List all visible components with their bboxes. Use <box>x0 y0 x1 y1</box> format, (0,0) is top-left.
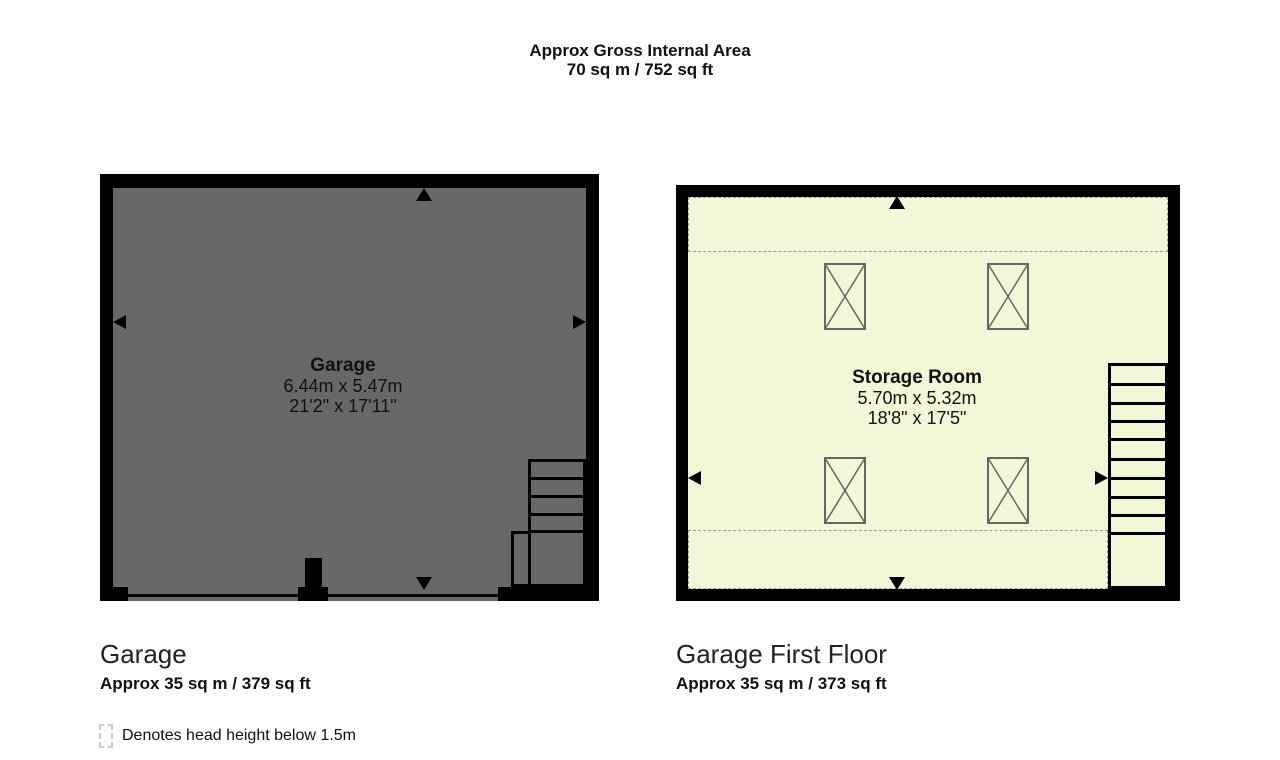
roof-truss-icon <box>824 457 866 524</box>
caption-title: Garage First Floor <box>676 640 887 668</box>
wall-bottom-left-corner <box>100 587 128 601</box>
room-label-garage: Garage 6.44m x 5.47m 21'2" x 17'11" <box>113 356 573 416</box>
wall-top <box>100 174 599 188</box>
stair-tread <box>1111 514 1165 517</box>
wall-top <box>676 185 1180 197</box>
arrow-right-icon <box>1095 471 1108 485</box>
arrow-left-icon <box>113 315 126 329</box>
stair-tread <box>1111 532 1165 535</box>
stair-tread <box>531 530 583 533</box>
wall-bottom <box>676 589 1180 601</box>
caption-garage: Garage Approx 35 sq m / 379 sq ft <box>100 640 311 694</box>
roof-truss-icon <box>987 263 1029 330</box>
garage-door-left <box>128 594 298 597</box>
wall-bottom-right-section <box>498 587 599 601</box>
caption-title: Garage <box>100 640 311 668</box>
stair-tread <box>531 495 583 498</box>
room-name: Storage Room <box>688 368 1146 388</box>
caption-garage-first-floor: Garage First Floor Approx 35 sq m / 373 … <box>676 640 887 694</box>
floorplan-page: Approx Gross Internal Area 70 sq m / 752… <box>0 0 1280 760</box>
room-name: Garage <box>113 356 573 376</box>
caption-area: Approx 35 sq m / 373 sq ft <box>676 674 887 694</box>
garage-first-floor-plan: Storage Room 5.70m x 5.32m 18'8" x 17'5" <box>676 185 1180 601</box>
room-size-metric: 6.44m x 5.47m <box>113 376 573 396</box>
head-height-zone-top <box>688 197 1168 252</box>
stair-tread <box>1111 458 1165 461</box>
arrow-up-icon <box>889 196 905 209</box>
arrow-down-icon <box>889 577 905 590</box>
arrow-left-icon <box>688 471 701 485</box>
stair-tread <box>1111 438 1165 441</box>
stair-tread <box>1111 477 1165 480</box>
wall-right <box>586 174 599 601</box>
roof-truss-icon <box>824 263 866 330</box>
stair-tread <box>531 513 583 516</box>
room-size-imperial: 21'2" x 17'11" <box>113 396 573 416</box>
header-title: Approx Gross Internal Area <box>0 41 1280 60</box>
room-label-storage-room: Storage Room 5.70m x 5.32m 18'8" x 17'5" <box>688 368 1146 428</box>
arrow-down-icon <box>416 577 432 590</box>
wall-left <box>100 174 113 601</box>
header-area: 70 sq m / 752 sq ft <box>0 60 1280 79</box>
wall-right <box>1168 185 1180 601</box>
wall-left <box>676 185 688 601</box>
garage-door-right <box>328 594 498 597</box>
dashed-box-icon <box>99 724 113 748</box>
garage-floorplan: Garage 6.44m x 5.47m 21'2" x 17'11" <box>100 174 599 601</box>
stair-tread <box>531 477 583 480</box>
staircase <box>528 459 586 587</box>
caption-area: Approx 35 sq m / 379 sq ft <box>100 674 311 694</box>
wall-bottom-center-pier <box>298 587 328 601</box>
room-size-imperial: 18'8" x 17'5" <box>688 408 1146 428</box>
roof-truss-icon <box>987 457 1029 524</box>
head-height-legend: Denotes head height below 1.5m <box>99 724 356 748</box>
arrow-up-icon <box>416 188 432 201</box>
arrow-right-icon <box>573 315 586 329</box>
room-size-metric: 5.70m x 5.32m <box>688 388 1146 408</box>
gross-internal-area-header: Approx Gross Internal Area 70 sq m / 752… <box>0 41 1280 79</box>
stair-landing <box>511 531 531 587</box>
door-pillar <box>305 558 322 589</box>
legend-label: Denotes head height below 1.5m <box>122 727 356 745</box>
stair-tread <box>1111 496 1165 499</box>
